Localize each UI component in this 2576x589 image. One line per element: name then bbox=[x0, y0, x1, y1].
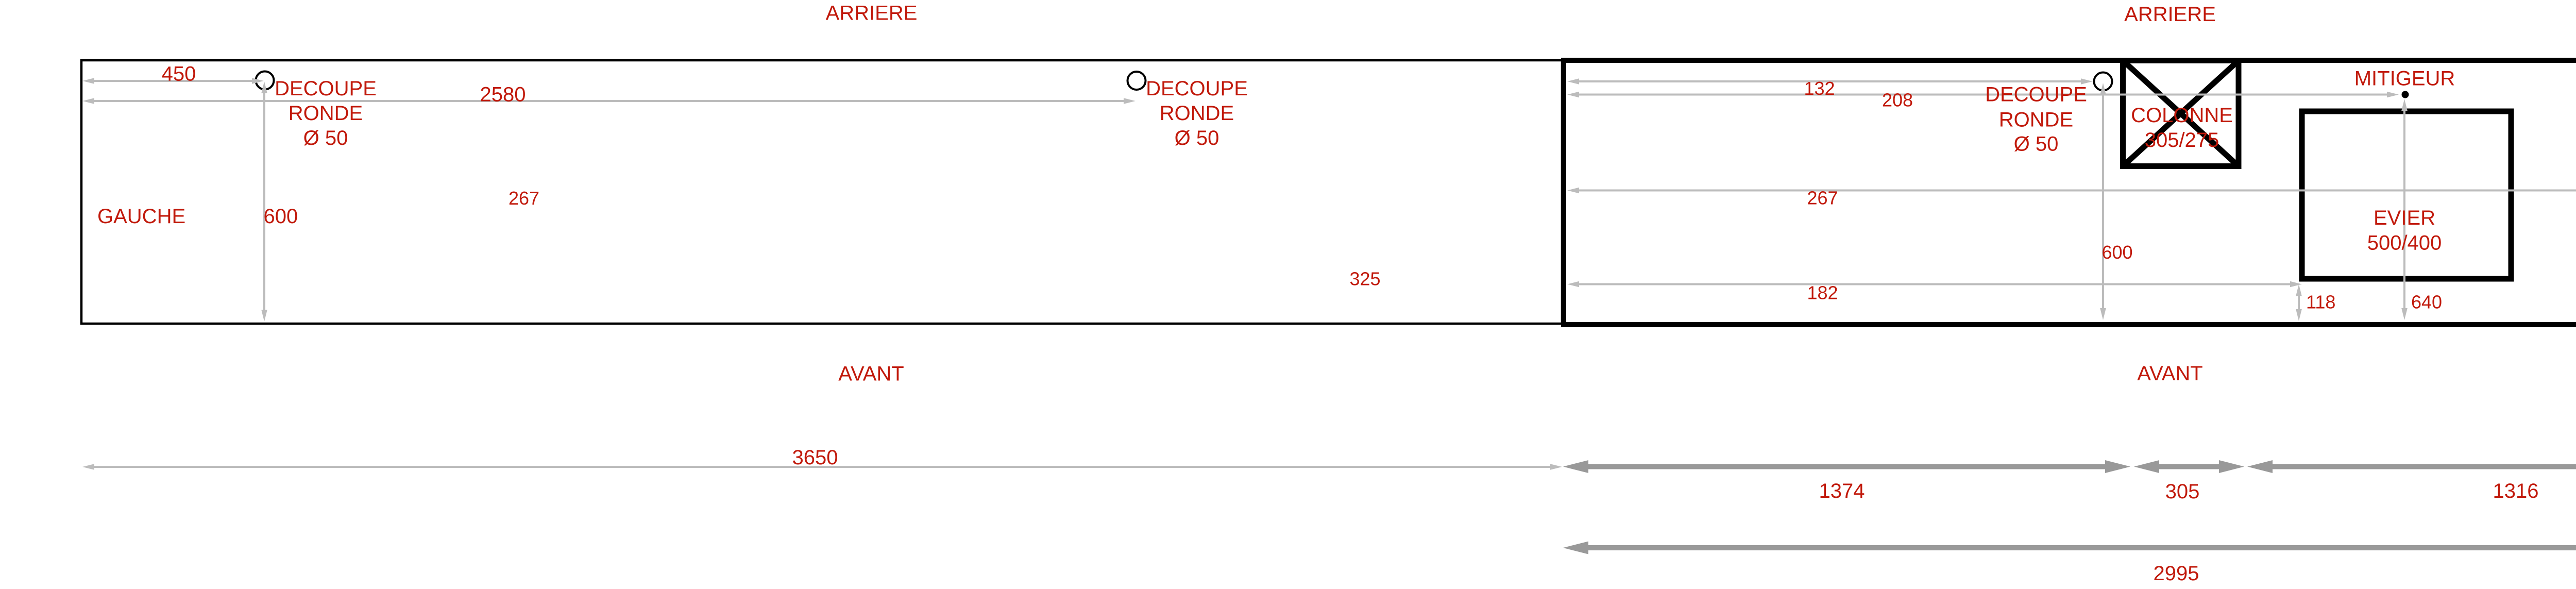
svg-text:208: 208 bbox=[1882, 90, 1913, 111]
svg-text:500/400: 500/400 bbox=[2367, 232, 2442, 255]
svg-text:AVANT: AVANT bbox=[838, 363, 904, 385]
svg-text:Ø 50: Ø 50 bbox=[1175, 127, 1219, 149]
svg-text:GAUCHE: GAUCHE bbox=[97, 205, 185, 228]
svg-text:182: 182 bbox=[1807, 282, 1838, 304]
svg-text:ARRIERE: ARRIERE bbox=[826, 2, 918, 25]
svg-text:305/275: 305/275 bbox=[2145, 129, 2219, 152]
svg-text:DECOUPE: DECOUPE bbox=[275, 77, 377, 100]
svg-text:EVIER: EVIER bbox=[2374, 207, 2435, 229]
svg-text:RONDE: RONDE bbox=[289, 102, 363, 125]
svg-text:COLONNE: COLONNE bbox=[2131, 104, 2233, 127]
svg-text:3650: 3650 bbox=[792, 446, 838, 469]
svg-text:DECOUPE: DECOUPE bbox=[1985, 83, 2087, 106]
svg-text:AVANT: AVANT bbox=[2137, 362, 2202, 385]
svg-text:RONDE: RONDE bbox=[1160, 102, 1234, 125]
svg-text:325: 325 bbox=[1349, 268, 1380, 290]
svg-text:640: 640 bbox=[2411, 292, 2442, 313]
svg-text:267: 267 bbox=[1807, 188, 1838, 209]
svg-text:2580: 2580 bbox=[480, 83, 526, 106]
svg-text:1374: 1374 bbox=[1819, 480, 1865, 502]
svg-text:600: 600 bbox=[264, 205, 298, 228]
svg-text:118: 118 bbox=[2306, 292, 2335, 313]
svg-text:ARRIERE: ARRIERE bbox=[2124, 3, 2216, 26]
svg-text:MITIGEUR: MITIGEUR bbox=[2354, 68, 2455, 90]
svg-text:RONDE: RONDE bbox=[1999, 109, 2073, 131]
svg-text:600: 600 bbox=[2102, 242, 2133, 263]
svg-text:267: 267 bbox=[509, 188, 539, 209]
svg-text:Ø 50: Ø 50 bbox=[2014, 133, 2059, 156]
svg-text:2995: 2995 bbox=[2154, 562, 2199, 585]
svg-text:132: 132 bbox=[1804, 78, 1835, 99]
svg-text:1316: 1316 bbox=[2493, 480, 2539, 502]
svg-text:305: 305 bbox=[2165, 480, 2200, 503]
svg-text:DECOUPE: DECOUPE bbox=[1146, 77, 1248, 100]
svg-text:Ø 50: Ø 50 bbox=[303, 127, 348, 149]
svg-text:450: 450 bbox=[162, 63, 196, 86]
